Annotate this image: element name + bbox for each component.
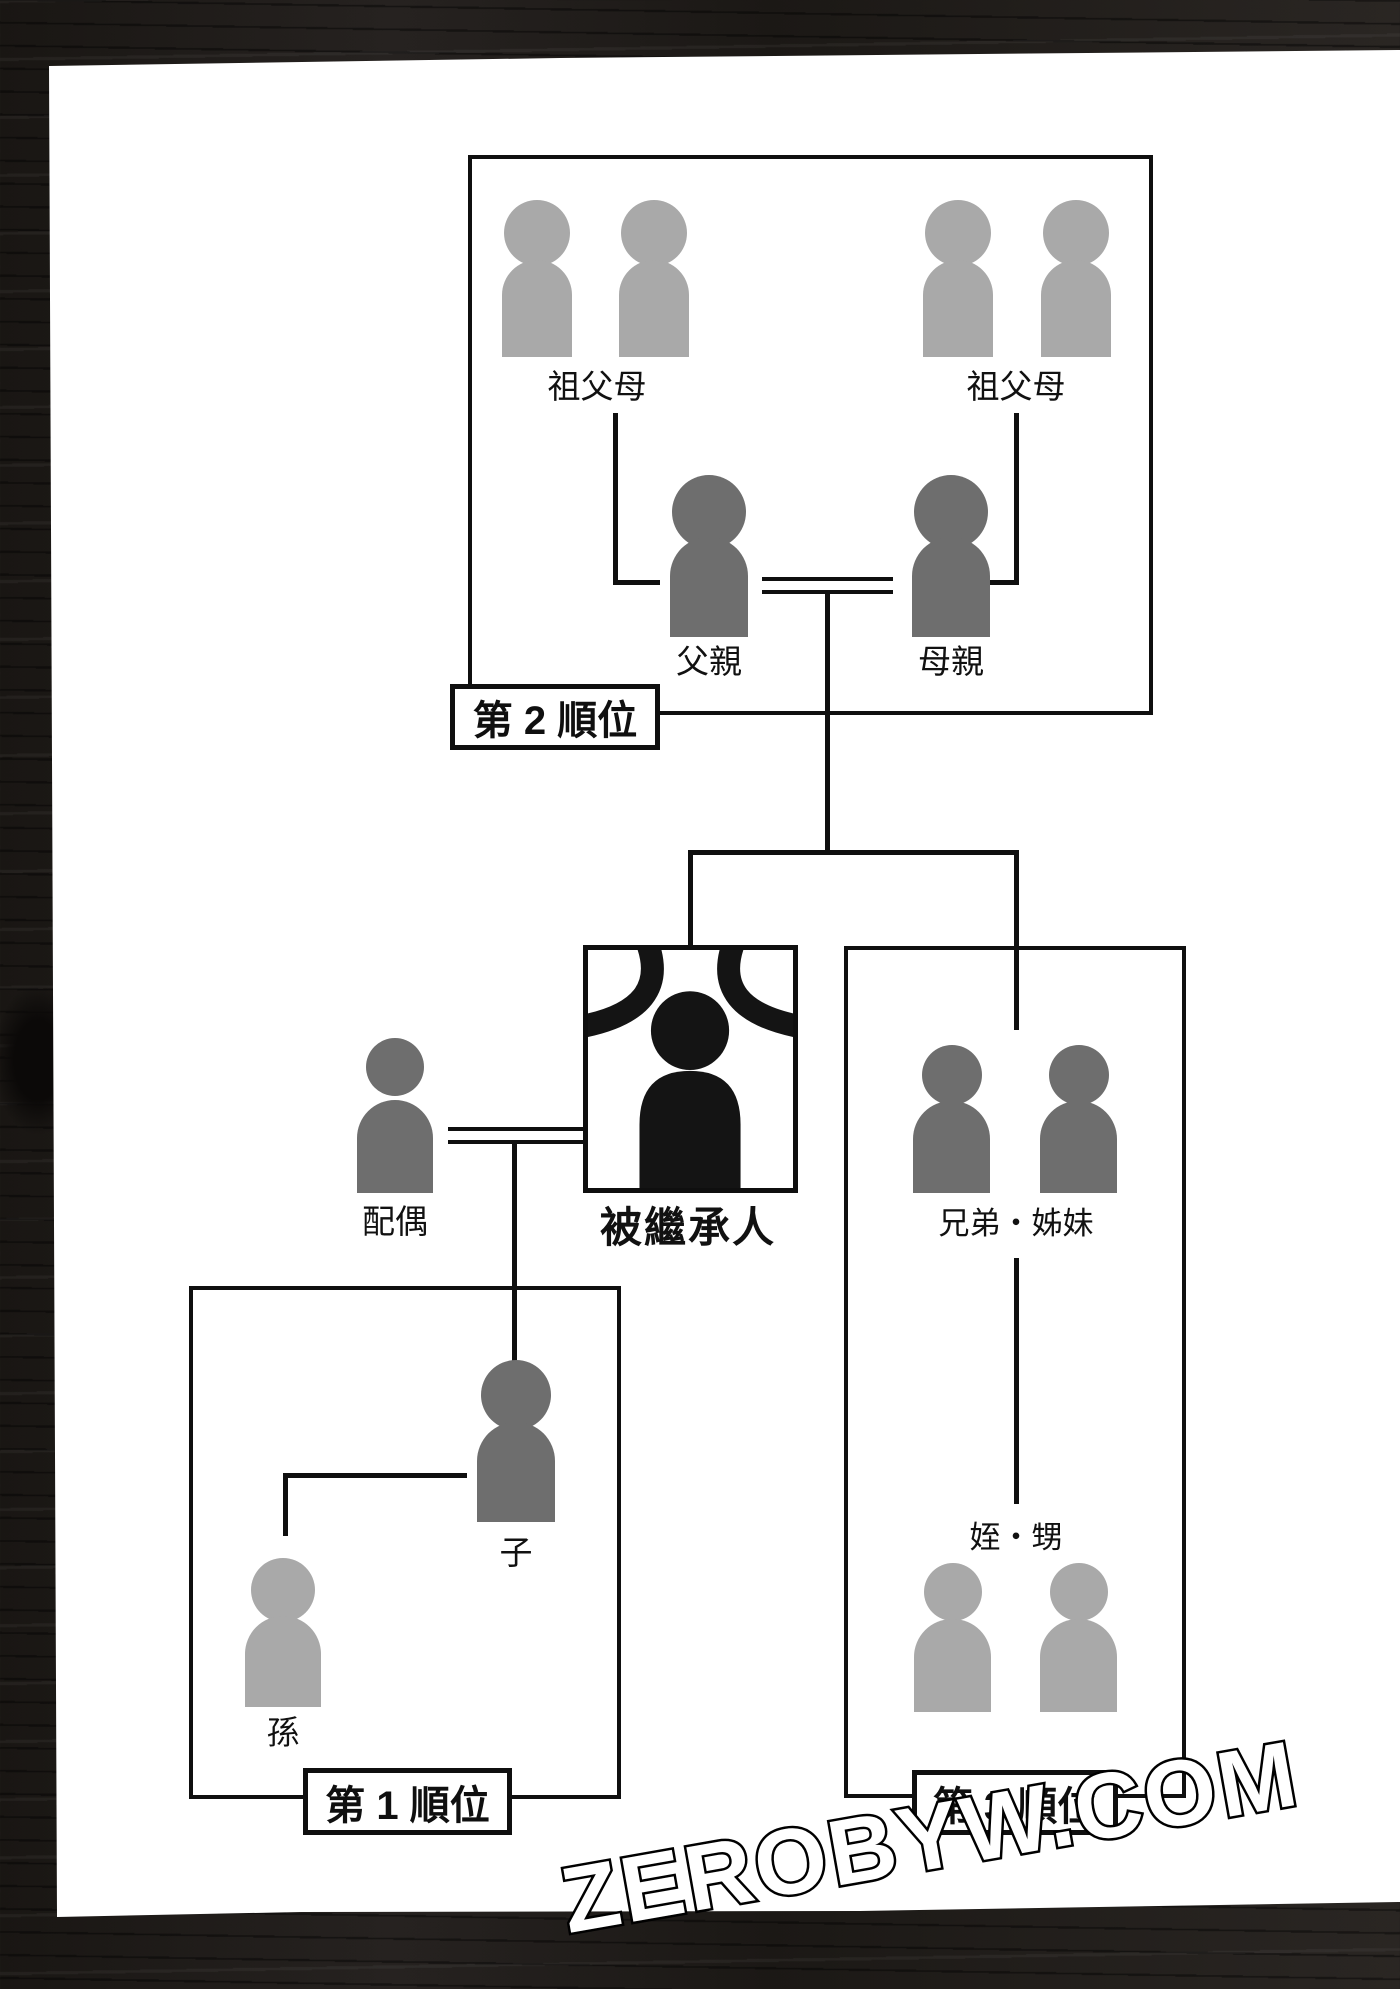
grandchild-figure-icon [245, 1558, 321, 1707]
rank2-label: 第 2 順位 [473, 688, 637, 746]
mother-figure-icon [912, 475, 990, 637]
niece-nephew-figure-icon [1040, 1563, 1117, 1712]
sibling-figure-icon [913, 1045, 990, 1193]
siblings-label: 兄弟・姊妹 [939, 1206, 1094, 1242]
connector-line [512, 1144, 517, 1362]
grandchild-label: 孫 [267, 1714, 300, 1752]
connector-line [825, 594, 830, 854]
rank1-label: 第 1 順位 [325, 1773, 489, 1831]
spouse-label: 配偶 [362, 1203, 428, 1241]
grandparent-figure-icon [923, 200, 993, 357]
grandparent-figure-icon [619, 200, 689, 357]
marriage-line [448, 1127, 583, 1131]
grandparents-left-label: 祖父母 [548, 368, 647, 406]
grandparent-figure-icon [502, 200, 572, 357]
decedent-portrait-box [583, 945, 798, 1193]
rank2-label-box: 第 2 順位 [450, 684, 660, 750]
connector-line [1014, 850, 1019, 1030]
child-label: 子 [500, 1534, 533, 1572]
nieces-nephews-label: 姪・甥 [970, 1520, 1063, 1556]
connector-line [613, 580, 660, 585]
connector-line [613, 413, 618, 585]
child-figure-icon [477, 1360, 555, 1522]
rank1-label-box: 第 1 順位 [303, 1768, 512, 1835]
decedent-label: 被繼承人 [600, 1204, 776, 1252]
spouse-figure-icon [357, 1038, 433, 1193]
connector-line [688, 850, 693, 947]
family-tree-diagram: 祖父母 祖父母 父親 母親 配偶 被繼承人 子 孫 兄弟・姊妹 姪・甥 第 2 … [0, 0, 1400, 1989]
connector-line [283, 1473, 467, 1478]
niece-nephew-figure-icon [914, 1563, 991, 1712]
connector-line [990, 580, 1019, 585]
mother-label: 母親 [918, 643, 984, 681]
connector-line [688, 850, 1019, 855]
father-figure-icon [670, 475, 748, 637]
connector-line [1014, 413, 1019, 585]
marriage-line [762, 577, 893, 581]
connector-line [1014, 1258, 1019, 1504]
grandparent-figure-icon [1041, 200, 1111, 357]
decedent-figure-icon [639, 991, 740, 1188]
connector-line [283, 1473, 288, 1536]
sibling-figure-icon [1040, 1045, 1117, 1193]
grandparents-right-label: 祖父母 [967, 368, 1066, 406]
funeral-curtain-icon [588, 950, 793, 1188]
rank1-group-box [189, 1286, 621, 1799]
father-label: 父親 [676, 643, 742, 681]
